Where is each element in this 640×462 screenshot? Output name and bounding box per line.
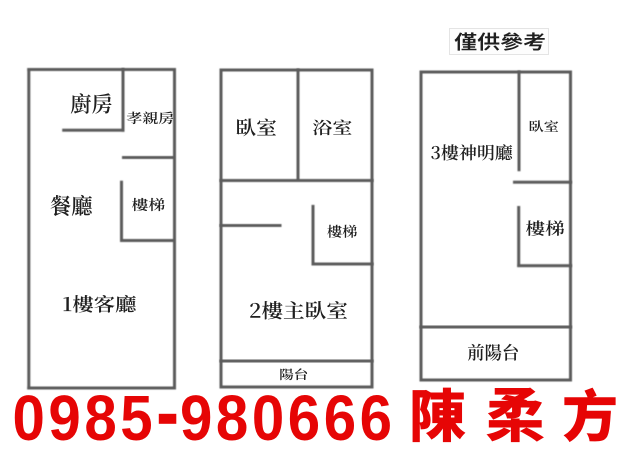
svg-text:980666: 980666 xyxy=(180,382,396,453)
svg-text:0985: 0985 xyxy=(12,382,156,453)
